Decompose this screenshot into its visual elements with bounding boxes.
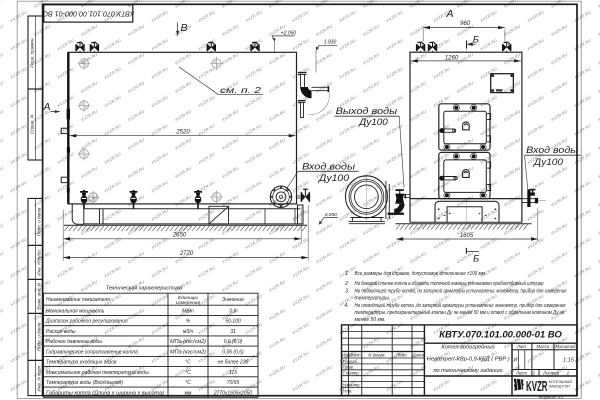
- svg-text:мм: мм: [185, 390, 192, 396]
- svg-text:Формат А3: Формат А3: [539, 395, 564, 400]
- svg-text:2520: 2520: [175, 130, 190, 136]
- svg-text:3: 3: [345, 288, 348, 294]
- svg-text:%: %: [186, 319, 191, 325]
- svg-text:Значение: Значение: [222, 297, 244, 303]
- svg-text:°С: °С: [185, 380, 191, 386]
- svg-text:м3/ч: м3/ч: [183, 329, 194, 335]
- svg-text:Все размеры для справок, допус: Все размеры для справок, допустимое откл…: [355, 271, 487, 277]
- svg-text:менее 50 мм.: менее 50 мм.: [355, 317, 386, 323]
- svg-text:Дата: Дата: [412, 352, 425, 357]
- svg-text:0,06 (0,6): 0,06 (0,6): [222, 349, 244, 355]
- svg-text:Техническая характеристика: Техническая характеристика: [106, 285, 182, 291]
- svg-text:Масса: Масса: [537, 344, 550, 349]
- svg-text:+2.050: +2.050: [281, 30, 297, 36]
- svg-text:КОТЕЛЬНЫЙ: КОТЕЛЬНЫЙ: [549, 380, 572, 384]
- svg-text:N докум.: N докум.: [368, 352, 385, 357]
- svg-text:Т.контр.: Т.контр.: [343, 371, 360, 376]
- svg-text:31: 31: [230, 329, 236, 335]
- svg-text:2: 2: [344, 281, 348, 287]
- svg-text:Б: Б: [473, 34, 479, 45]
- svg-text:И: И: [513, 357, 517, 363]
- svg-text:1.930: 1.930: [324, 40, 337, 46]
- svg-text:Гидравлическое сопротивление к: Гидравлическое сопротивление котла: [46, 349, 138, 355]
- svg-text:Пров.: Пров.: [343, 365, 354, 370]
- svg-text:0.000: 0.000: [325, 212, 337, 218]
- svg-text:КВТУ.070.101.00.000-01 ВО: КВТУ.070.101.00.000-01 ВО: [439, 330, 562, 341]
- svg-text:Лит.: Лит.: [516, 344, 527, 349]
- svg-text:температуры.: температуры.: [355, 295, 391, 301]
- svg-text:ЗАВОД РЭП: ЗАВОД РЭП: [549, 385, 570, 389]
- svg-text:70/95: 70/95: [227, 380, 240, 386]
- svg-text:МПа (кгс/см2): МПа (кгс/см2): [170, 349, 206, 355]
- svg-text:Котел водогрейный: Котел водогрейный: [441, 344, 494, 351]
- svg-text:50-100: 50-100: [225, 319, 241, 325]
- svg-text:не более 230: не более 230: [218, 360, 249, 366]
